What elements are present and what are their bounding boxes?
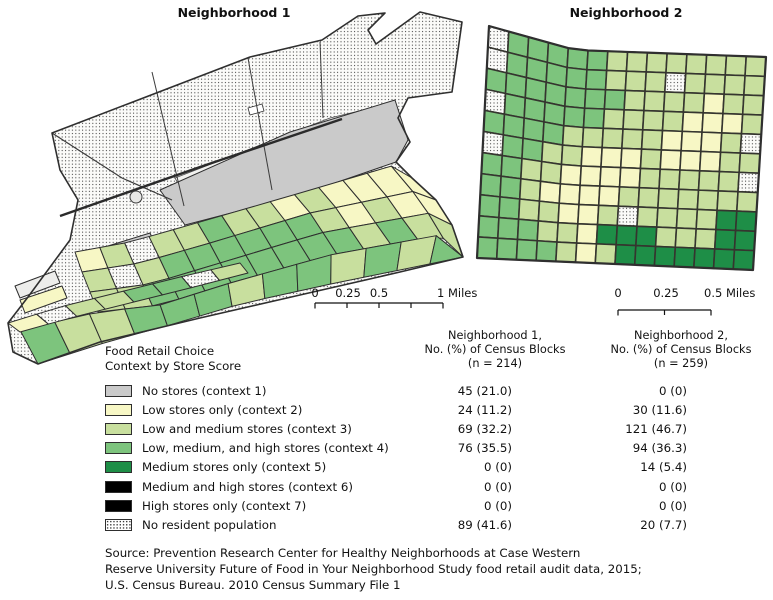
census-block (500, 176, 521, 199)
census-block (518, 219, 539, 241)
scalebar-map1 (315, 303, 443, 309)
census-block (743, 95, 764, 115)
census-block (499, 197, 520, 219)
neighborhood1-count-value: 0 (0) (392, 458, 512, 477)
legend-heading-line1: Food Retail Choice (105, 344, 241, 359)
census-block (560, 164, 581, 185)
census-block (734, 230, 755, 250)
census-block (482, 131, 503, 155)
map-neighborhood-2 (477, 26, 766, 270)
maps-canvas: 0 0.25 0.5 1 Miles 0 0.25 0.5 Miles (0, 0, 773, 380)
census-block (679, 170, 700, 190)
census-block (719, 152, 740, 172)
scalebar1-label-025: 0.25 (335, 286, 361, 300)
census-block (520, 179, 541, 201)
census-block (636, 226, 657, 246)
col1-header-line3: (n = 214) (410, 357, 580, 371)
census-block (721, 133, 742, 153)
census-block (587, 50, 608, 70)
census-block (497, 238, 518, 260)
census-block (538, 201, 559, 223)
census-block (501, 156, 522, 179)
scalebar1-label-1miles: 1 Miles (437, 286, 477, 300)
census-block (624, 90, 645, 110)
census-block (678, 189, 699, 209)
legend-row: Low and medium stores (context 3)69 (32.… (100, 419, 700, 438)
census-block (737, 192, 758, 212)
scalebar2-label-025: 0.25 (653, 286, 679, 300)
census-block (561, 145, 582, 166)
census-block (542, 142, 563, 165)
legend-row-label: Low, medium, and high stores (context 4) (142, 441, 389, 455)
census-block (645, 72, 666, 92)
neighborhood1-count-value: 69 (32.2) (392, 419, 512, 438)
legend-swatch-context5-icon (105, 461, 132, 473)
legend-row-label: High stores only (context 7) (142, 499, 306, 513)
figure-food-retail-context-maps: Neighborhood 1 Neighborhood 2 0 0.25 0.5… (0, 0, 773, 600)
census-block (521, 159, 542, 182)
census-block (599, 186, 620, 206)
census-block (541, 161, 562, 183)
census-block (577, 224, 598, 244)
census-block (738, 172, 759, 192)
census-block (681, 131, 702, 151)
census-block (616, 225, 637, 245)
legend-heading: Food Retail Choice Context by Store Scor… (105, 344, 241, 374)
census-block (579, 185, 600, 205)
census-block (564, 106, 585, 127)
scalebar1-label-05: 0.5 (370, 286, 388, 300)
census-block (676, 209, 697, 229)
legend-row-label: Low and medium stores (context 3) (142, 422, 352, 436)
census-block (557, 223, 578, 243)
census-block (559, 184, 580, 205)
census-block (697, 190, 718, 210)
census-block (584, 108, 605, 128)
census-block (582, 127, 603, 147)
census-block (586, 70, 607, 90)
census-block (623, 110, 644, 130)
census-block (642, 130, 663, 150)
legend-swatch-context3-icon (105, 423, 132, 435)
neighborhood2-count-value: 0 (0) (567, 477, 687, 496)
census-block (656, 227, 677, 247)
legend-heading-line2: Context by Store Score (105, 359, 241, 374)
legend-row-label: No stores (context 1) (142, 384, 266, 398)
neighborhood2-count-value: 30 (11.6) (567, 400, 687, 419)
census-block (598, 205, 619, 225)
neighborhood1-count-value: 0 (0) (392, 477, 512, 496)
census-block (567, 48, 588, 70)
census-block (477, 237, 498, 259)
legend-row: No stores (context 1)45 (21.0)0 (0) (100, 381, 700, 400)
scalebar2-label-0: 0 (614, 286, 621, 300)
legend-swatch-context2-icon (105, 404, 132, 416)
census-block (717, 191, 738, 211)
census-block (635, 246, 656, 266)
legend-row: Medium and high stores (context 6)0 (0)0… (100, 477, 700, 496)
census-block (682, 112, 703, 132)
census-block (695, 229, 716, 249)
neighborhood2-count-value: 94 (36.3) (567, 439, 687, 458)
census-block (742, 114, 763, 134)
census-block (516, 239, 537, 260)
legend-row-label: Medium and high stores (context 6) (142, 480, 353, 494)
census-block (740, 134, 761, 154)
map1-interchange-detail (130, 191, 142, 203)
col1-header-line2: No. (%) of Census Blocks (410, 343, 580, 357)
legend-swatch-context6-icon (105, 481, 132, 493)
column-header-neighborhood2: Neighborhood 2, No. (%) of Census Blocks… (596, 329, 766, 372)
legend-row: High stores only (context 7)0 (0)0 (0) (100, 496, 700, 515)
census-block (663, 111, 684, 131)
census-block (736, 211, 757, 231)
census-block (638, 188, 659, 208)
legend-swatch-dotted-icon (105, 519, 132, 531)
census-block (744, 76, 765, 96)
census-block (565, 87, 586, 108)
neighborhood1-count-value: 45 (21.0) (392, 381, 512, 400)
census-block (607, 51, 628, 71)
neighborhood1-count-value: 0 (0) (392, 496, 512, 515)
census-block (617, 206, 638, 226)
source-line2: Reserve University Future of Food in You… (105, 562, 725, 578)
legend-row-label: Medium stores only (context 5) (142, 460, 326, 474)
census-block (665, 73, 686, 93)
census-block (498, 218, 519, 240)
census-block (563, 126, 584, 147)
neighborhood1-count-value: 76 (35.5) (392, 439, 512, 458)
census-block (661, 131, 682, 151)
source-line3: U.S. Census Bureau. 2010 Census Summary … (105, 578, 725, 594)
census-block (703, 93, 724, 113)
census-block (722, 114, 743, 134)
column-header-neighborhood1: Neighborhood 1, No. (%) of Census Blocks… (410, 329, 580, 372)
census-block (739, 153, 760, 173)
census-block (725, 56, 746, 76)
census-block (618, 187, 639, 207)
census-block (715, 230, 736, 250)
neighborhood2-count-value: 14 (5.4) (567, 458, 687, 477)
census-block (580, 166, 601, 186)
census-block (704, 74, 725, 94)
census-block (666, 53, 687, 73)
census-block (620, 168, 641, 188)
col2-header-line2: No. (%) of Census Blocks (596, 343, 766, 357)
census-block (685, 73, 706, 93)
census-block (699, 171, 720, 191)
census-block (602, 128, 623, 148)
col1-header-line1: Neighborhood 1, (410, 329, 580, 343)
source-line1: Source: Prevention Research Center for H… (105, 546, 725, 562)
neighborhood2-count-value: 0 (0) (567, 496, 687, 515)
census-block (733, 250, 754, 270)
scalebar1-label-0: 0 (311, 286, 318, 300)
census-block (702, 113, 723, 133)
legend-row: Low stores only (context 2)24 (11.2)30 (… (100, 400, 700, 419)
legend-row-label: Low stores only (context 2) (142, 403, 302, 417)
legend-row: Medium stores only (context 5)0 (0)14 (5… (100, 458, 700, 477)
census-block (595, 244, 616, 264)
census-block (604, 90, 625, 110)
census-block (701, 132, 722, 152)
map-neighborhood-1 (8, 12, 463, 364)
census-block (646, 53, 667, 73)
legend-row: No resident population89 (41.6)20 (7.7) (100, 515, 700, 534)
census-block (578, 205, 599, 225)
census-block (581, 147, 602, 167)
census-block (664, 92, 685, 112)
census-block (556, 242, 577, 262)
census-block (480, 174, 501, 197)
census-block (522, 138, 543, 161)
neighborhood1-count-value: 24 (11.2) (392, 400, 512, 419)
census-block (745, 56, 766, 76)
census-block (694, 248, 715, 268)
neighborhood2-count-value: 121 (46.7) (567, 419, 687, 438)
legend-row: Low, medium, and high stores (context 4)… (100, 439, 700, 458)
census-block (606, 70, 627, 90)
census-block (478, 216, 499, 238)
census-block (657, 208, 678, 228)
scalebar2-label-05miles: 0.5 Miles (704, 286, 755, 300)
census-block (519, 199, 540, 221)
census-block (639, 168, 660, 188)
col2-header-line3: (n = 259) (596, 357, 766, 371)
census-block (576, 243, 597, 263)
census-block (660, 150, 681, 170)
neighborhood2-count-value: 20 (7.7) (567, 515, 687, 534)
neighborhood2-count-value: 0 (0) (567, 381, 687, 400)
census-block (600, 167, 621, 187)
legend-swatch-context1-icon (105, 385, 132, 397)
census-block (479, 195, 500, 218)
census-block (585, 89, 606, 109)
census-block (680, 151, 701, 171)
census-block (621, 148, 642, 168)
census-block (626, 52, 647, 72)
census-block (558, 203, 579, 224)
census-block (714, 249, 735, 269)
census-block (502, 135, 523, 159)
census-block (603, 109, 624, 129)
census-block (658, 189, 679, 209)
census-block (622, 129, 643, 149)
census-block (700, 151, 721, 171)
census-block (686, 54, 707, 74)
census-block (537, 221, 558, 242)
census-block (539, 181, 560, 203)
census-block (674, 247, 695, 267)
census-block (654, 246, 675, 266)
census-block (723, 94, 744, 114)
census-block (601, 148, 622, 168)
legend-swatch-context4-icon (105, 442, 132, 454)
legend-row-label: No resident population (142, 518, 276, 532)
census-block (481, 153, 502, 177)
census-block (659, 169, 680, 189)
census-block (566, 68, 587, 89)
legend-swatch-context7-icon (105, 500, 132, 512)
census-block (718, 172, 739, 192)
census-block (640, 149, 661, 169)
census-block (675, 228, 696, 248)
neighborhood1-count-value: 89 (41.6) (392, 515, 512, 534)
census-block (724, 75, 745, 95)
census-block (683, 93, 704, 113)
census-block (615, 245, 636, 265)
census-block (625, 71, 646, 91)
census-block (637, 207, 658, 227)
census-block (716, 210, 737, 230)
census-block (596, 225, 617, 245)
census-block (706, 55, 727, 75)
census-block (643, 111, 664, 131)
census-block (644, 91, 665, 111)
col2-header-line1: Neighborhood 2, (596, 329, 766, 343)
scalebar-map2 (618, 310, 711, 316)
census-block (536, 241, 557, 262)
source-citation: Source: Prevention Research Center for H… (105, 546, 725, 593)
census-block (696, 209, 717, 229)
